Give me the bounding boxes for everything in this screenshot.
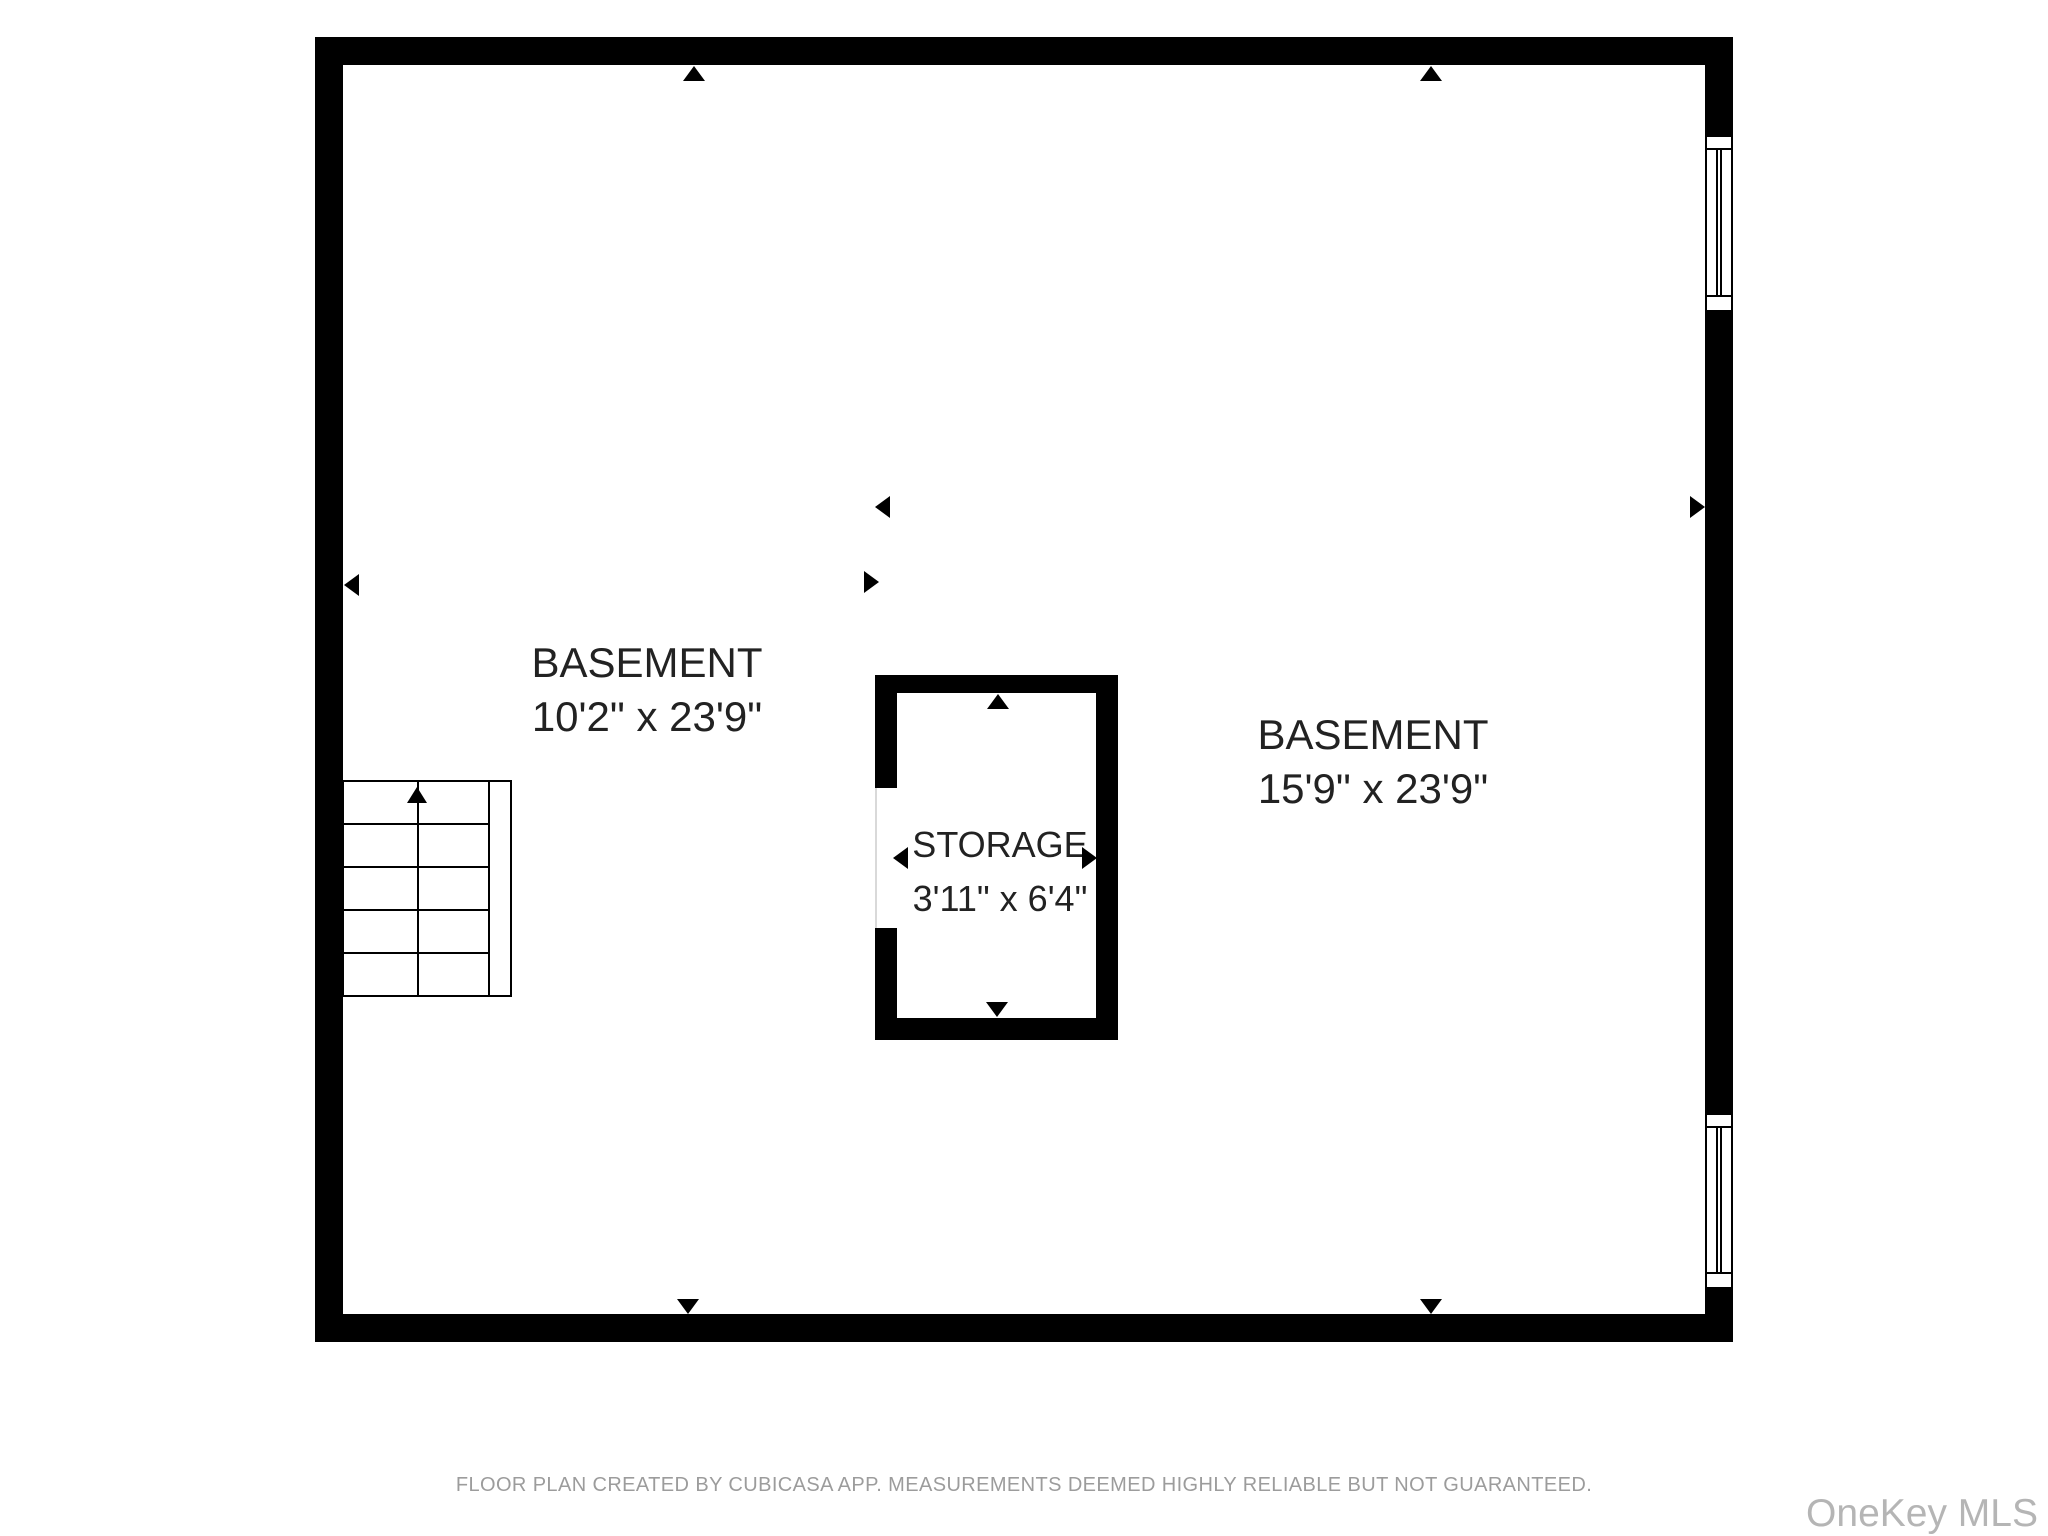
staircase-rail (488, 782, 510, 995)
window-symbol-upper (1705, 137, 1733, 310)
room-dimensions: 15'9" x 23'9" (1257, 762, 1488, 816)
down-arrow-icon (986, 1002, 1008, 1017)
up-arrow-icon (1420, 66, 1442, 81)
room-name: BASEMENT (1257, 708, 1488, 762)
up-arrow-icon (683, 66, 705, 81)
room-dimensions: 3'11" x 6'4" (912, 872, 1087, 926)
disclaimer-text: FLOOR PLAN CREATED BY CUBICASA APP. MEAS… (0, 1474, 2048, 1497)
right-arrow-icon (864, 571, 879, 593)
staircase-tread-line (344, 952, 488, 954)
exterior-wall-bottom (315, 1314, 1733, 1342)
exterior-wall-left (315, 37, 343, 1342)
room-label-storage: STORAGE 3'11" x 6'4" (912, 818, 1087, 926)
left-arrow-icon (893, 847, 908, 869)
staircase-symbol (342, 780, 512, 997)
room-label-basement-left: BASEMENT 10'2" x 23'9" (531, 636, 762, 744)
up-arrow-icon (987, 694, 1009, 709)
window-glass-line (1716, 150, 1722, 295)
room-dimensions: 10'2" x 23'9" (531, 690, 762, 744)
left-arrow-icon (875, 496, 890, 518)
staircase-tread-line (344, 823, 488, 825)
down-arrow-icon (677, 1299, 699, 1314)
right-arrow-icon (1690, 496, 1705, 518)
exterior-wall-top (315, 37, 1733, 65)
right-arrow-icon (1082, 847, 1097, 869)
floor-plan-canvas: BASEMENT 10'2" x 23'9" BASEMENT 15'9" x … (0, 0, 2048, 1536)
window-sill-line (1707, 1272, 1731, 1274)
window-symbol-lower (1705, 1115, 1733, 1287)
staircase-walkline (417, 782, 419, 995)
room-name: STORAGE (912, 818, 1087, 872)
staircase-tread-line (344, 909, 488, 911)
watermark-onekey-mls: OneKey MLS (1806, 1492, 2038, 1536)
staircase-tread-line (344, 866, 488, 868)
window-glass-line (1716, 1128, 1722, 1272)
left-arrow-icon (344, 574, 359, 596)
window-sill-line (1707, 295, 1731, 297)
down-arrow-icon (1420, 1299, 1442, 1314)
stairs-up-arrow-icon (407, 787, 427, 803)
room-name: BASEMENT (531, 636, 762, 690)
room-label-basement-right: BASEMENT 15'9" x 23'9" (1257, 708, 1488, 816)
